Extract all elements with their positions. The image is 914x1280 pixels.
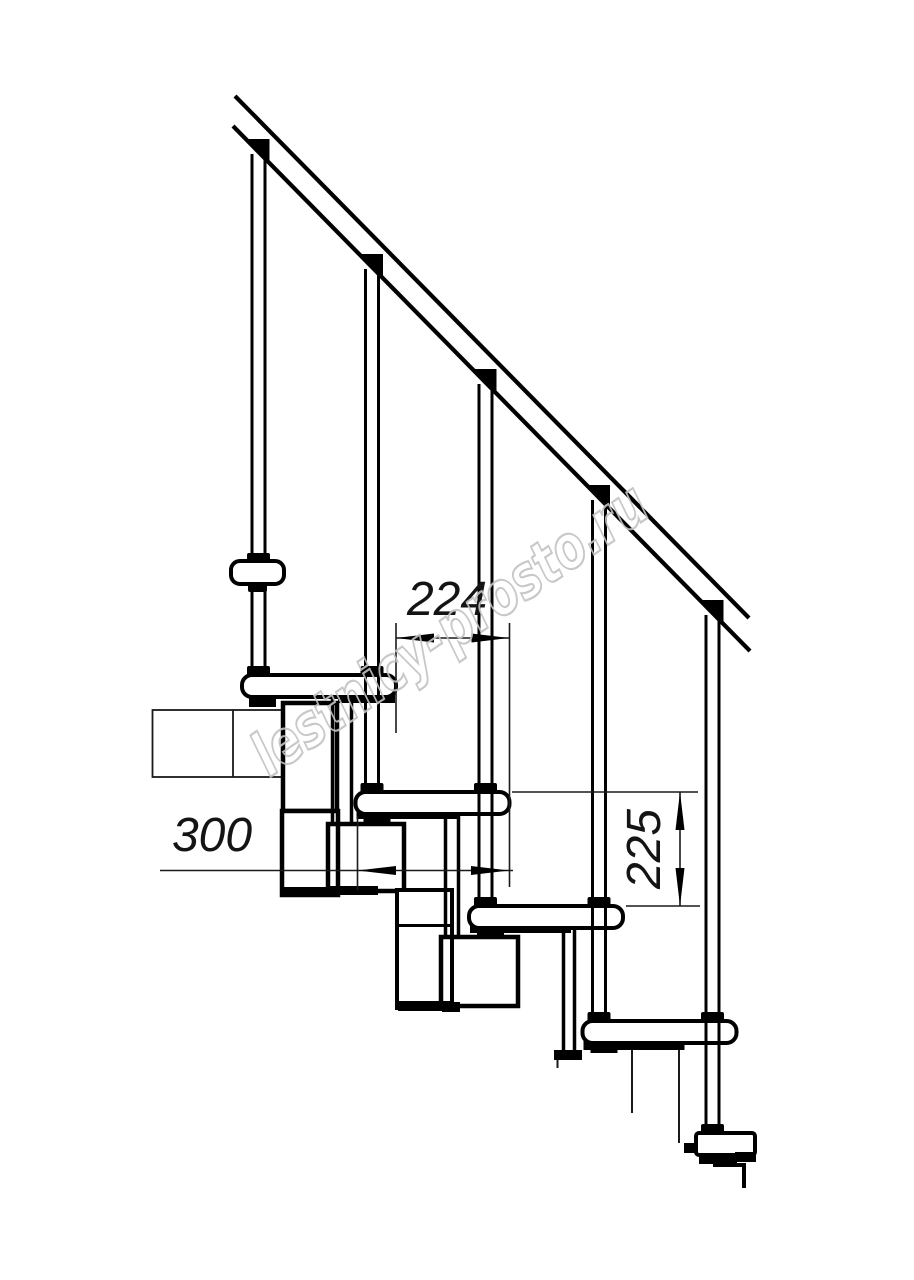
collar-b4-t4 xyxy=(588,1012,611,1022)
tread-5 xyxy=(696,1133,755,1155)
cap-bottom-collar xyxy=(248,582,267,592)
tread-5-flange xyxy=(699,1154,737,1164)
tread-5-bracket xyxy=(713,1165,744,1188)
collar-b2-t2 xyxy=(361,783,384,793)
dim-300-arrow-right xyxy=(471,866,510,875)
upper-flight-tread-cap xyxy=(231,553,284,592)
support-strut-3 xyxy=(564,928,575,1050)
support-cut-lines xyxy=(558,1047,680,1143)
watermark-text: lestnicy-prosto.ru xyxy=(238,469,661,790)
collar-b3-t3 xyxy=(474,897,497,907)
collar-b1-t1 xyxy=(247,666,270,676)
dim-300-label: 300 xyxy=(172,809,252,862)
tread-5-left-lug xyxy=(684,1143,697,1153)
collar-b5-t5 xyxy=(701,1124,724,1134)
rail-connector-2 xyxy=(360,254,383,277)
support-sleeve-1-plate xyxy=(330,886,378,895)
collar-b5-t4 xyxy=(701,1012,724,1022)
staircase-drawing: 224 300 225 lestnicy-prosto.ru xyxy=(0,0,914,1280)
tread-4 xyxy=(583,1021,737,1043)
baluster-5 xyxy=(706,615,719,1133)
rail-connector-5 xyxy=(701,600,724,623)
dim-225-arrow-up xyxy=(676,792,685,830)
tread-2 xyxy=(356,792,510,814)
cap-body xyxy=(231,561,284,584)
support-strut-3-foot xyxy=(554,1050,582,1060)
collar-b3-t2 xyxy=(474,783,497,793)
drawing-page: 224 300 225 lestnicy-prosto.ru xyxy=(0,0,914,1280)
tread-3 xyxy=(469,906,623,928)
baluster-4 xyxy=(593,500,606,1021)
dim-225-label: 225 xyxy=(618,809,671,890)
rail-connector-3 xyxy=(474,369,497,392)
tread-5-step-plate xyxy=(735,1152,756,1162)
support-sleeve-2-plate xyxy=(442,1002,460,1012)
dim-300-arrow-left xyxy=(358,866,397,875)
dim-225-arrow-down xyxy=(676,868,685,906)
collar-b4-t3 xyxy=(588,897,611,907)
baluster-1 xyxy=(252,154,265,675)
